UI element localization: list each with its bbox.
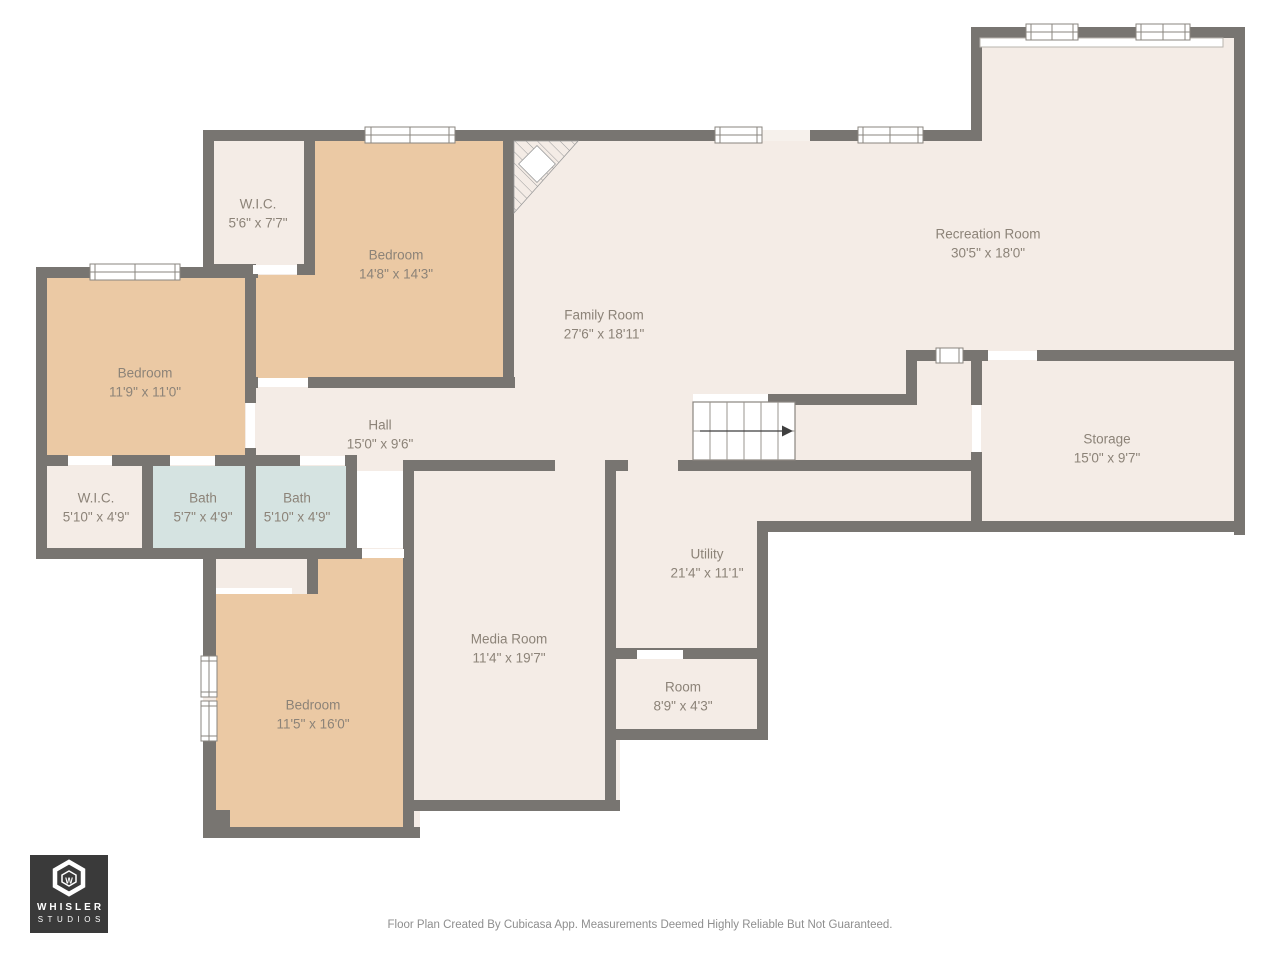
- dims-wic-lower: 5'10" x 4'9": [63, 510, 130, 525]
- window-bedroom-upper: [365, 127, 455, 143]
- label-room: Room: [665, 680, 701, 695]
- label-bath-1: Bath: [189, 491, 217, 506]
- dims-storage: 15'0" x 9'7": [1074, 451, 1141, 466]
- dims-bedroom-left: 11'9" x 11'0": [109, 385, 181, 400]
- dims-room: 8'9" x 4'3": [653, 699, 712, 714]
- label-bedroom-left: Bedroom: [118, 366, 173, 381]
- label-utility: Utility: [691, 547, 724, 562]
- bedroom-lower-closet-floor: [216, 553, 307, 594]
- window-family-1: [715, 127, 762, 143]
- dims-bedroom-upper: 14'8" x 14'3": [359, 267, 433, 282]
- window-bedroom-lower-2: [201, 701, 217, 741]
- bath-2-floor: [256, 466, 346, 548]
- dims-media-room: 11'4" x 19'7": [472, 651, 545, 666]
- dims-utility: 21'4" x 11'1": [670, 566, 743, 581]
- label-wic-lower: W.I.C.: [78, 491, 115, 506]
- whisler-hexagon-icon: W: [30, 855, 108, 901]
- window-recreation-2: [1136, 24, 1190, 40]
- disclaimer-text: Floor Plan Created By Cubicasa App. Meas…: [0, 919, 1280, 931]
- stairs: [693, 402, 795, 460]
- bedroom-lower-floor: [216, 553, 403, 827]
- dims-bath-1: 5'7" x 4'9": [173, 510, 232, 525]
- logo-studio-name: WHISLER: [34, 902, 104, 913]
- dims-hall: 15'0" x 9'6": [347, 437, 414, 452]
- dims-wic-upper: 5'6" x 7'7": [228, 216, 287, 231]
- window-bedroom-left: [90, 264, 180, 280]
- label-recreation-room: Recreation Room: [935, 227, 1040, 242]
- dims-bedroom-lower: 11'5" x 16'0": [276, 717, 349, 732]
- label-wic-upper: W.I.C.: [240, 197, 277, 212]
- window-family-2: [858, 127, 923, 143]
- dims-family-room: 27'6" x 18'11": [564, 327, 645, 342]
- window-recreation-1: [1026, 24, 1078, 40]
- logo-monogram: W: [65, 877, 73, 886]
- label-bath-2: Bath: [283, 491, 311, 506]
- window-bedroom-lower-1: [201, 656, 217, 697]
- bath-1-floor: [153, 466, 245, 548]
- window-stair-nook: [936, 348, 963, 363]
- label-bedroom-upper: Bedroom: [369, 248, 424, 263]
- label-hall: Hall: [368, 418, 391, 433]
- label-media-room: Media Room: [471, 632, 548, 647]
- label-storage: Storage: [1083, 432, 1130, 447]
- dims-recreation-room: 30'5" x 18'0": [951, 246, 1025, 261]
- floor-plan-drawing: W.I.C. 5'6" x 7'7" Bedroom 14'8" x 14'3"…: [0, 0, 1280, 960]
- floor-plan-page: W.I.C. 5'6" x 7'7" Bedroom 14'8" x 14'3"…: [0, 0, 1280, 960]
- label-bedroom-lower: Bedroom: [286, 698, 341, 713]
- dims-bath-2: 5'10" x 4'9": [264, 510, 331, 525]
- label-family-room: Family Room: [564, 308, 644, 323]
